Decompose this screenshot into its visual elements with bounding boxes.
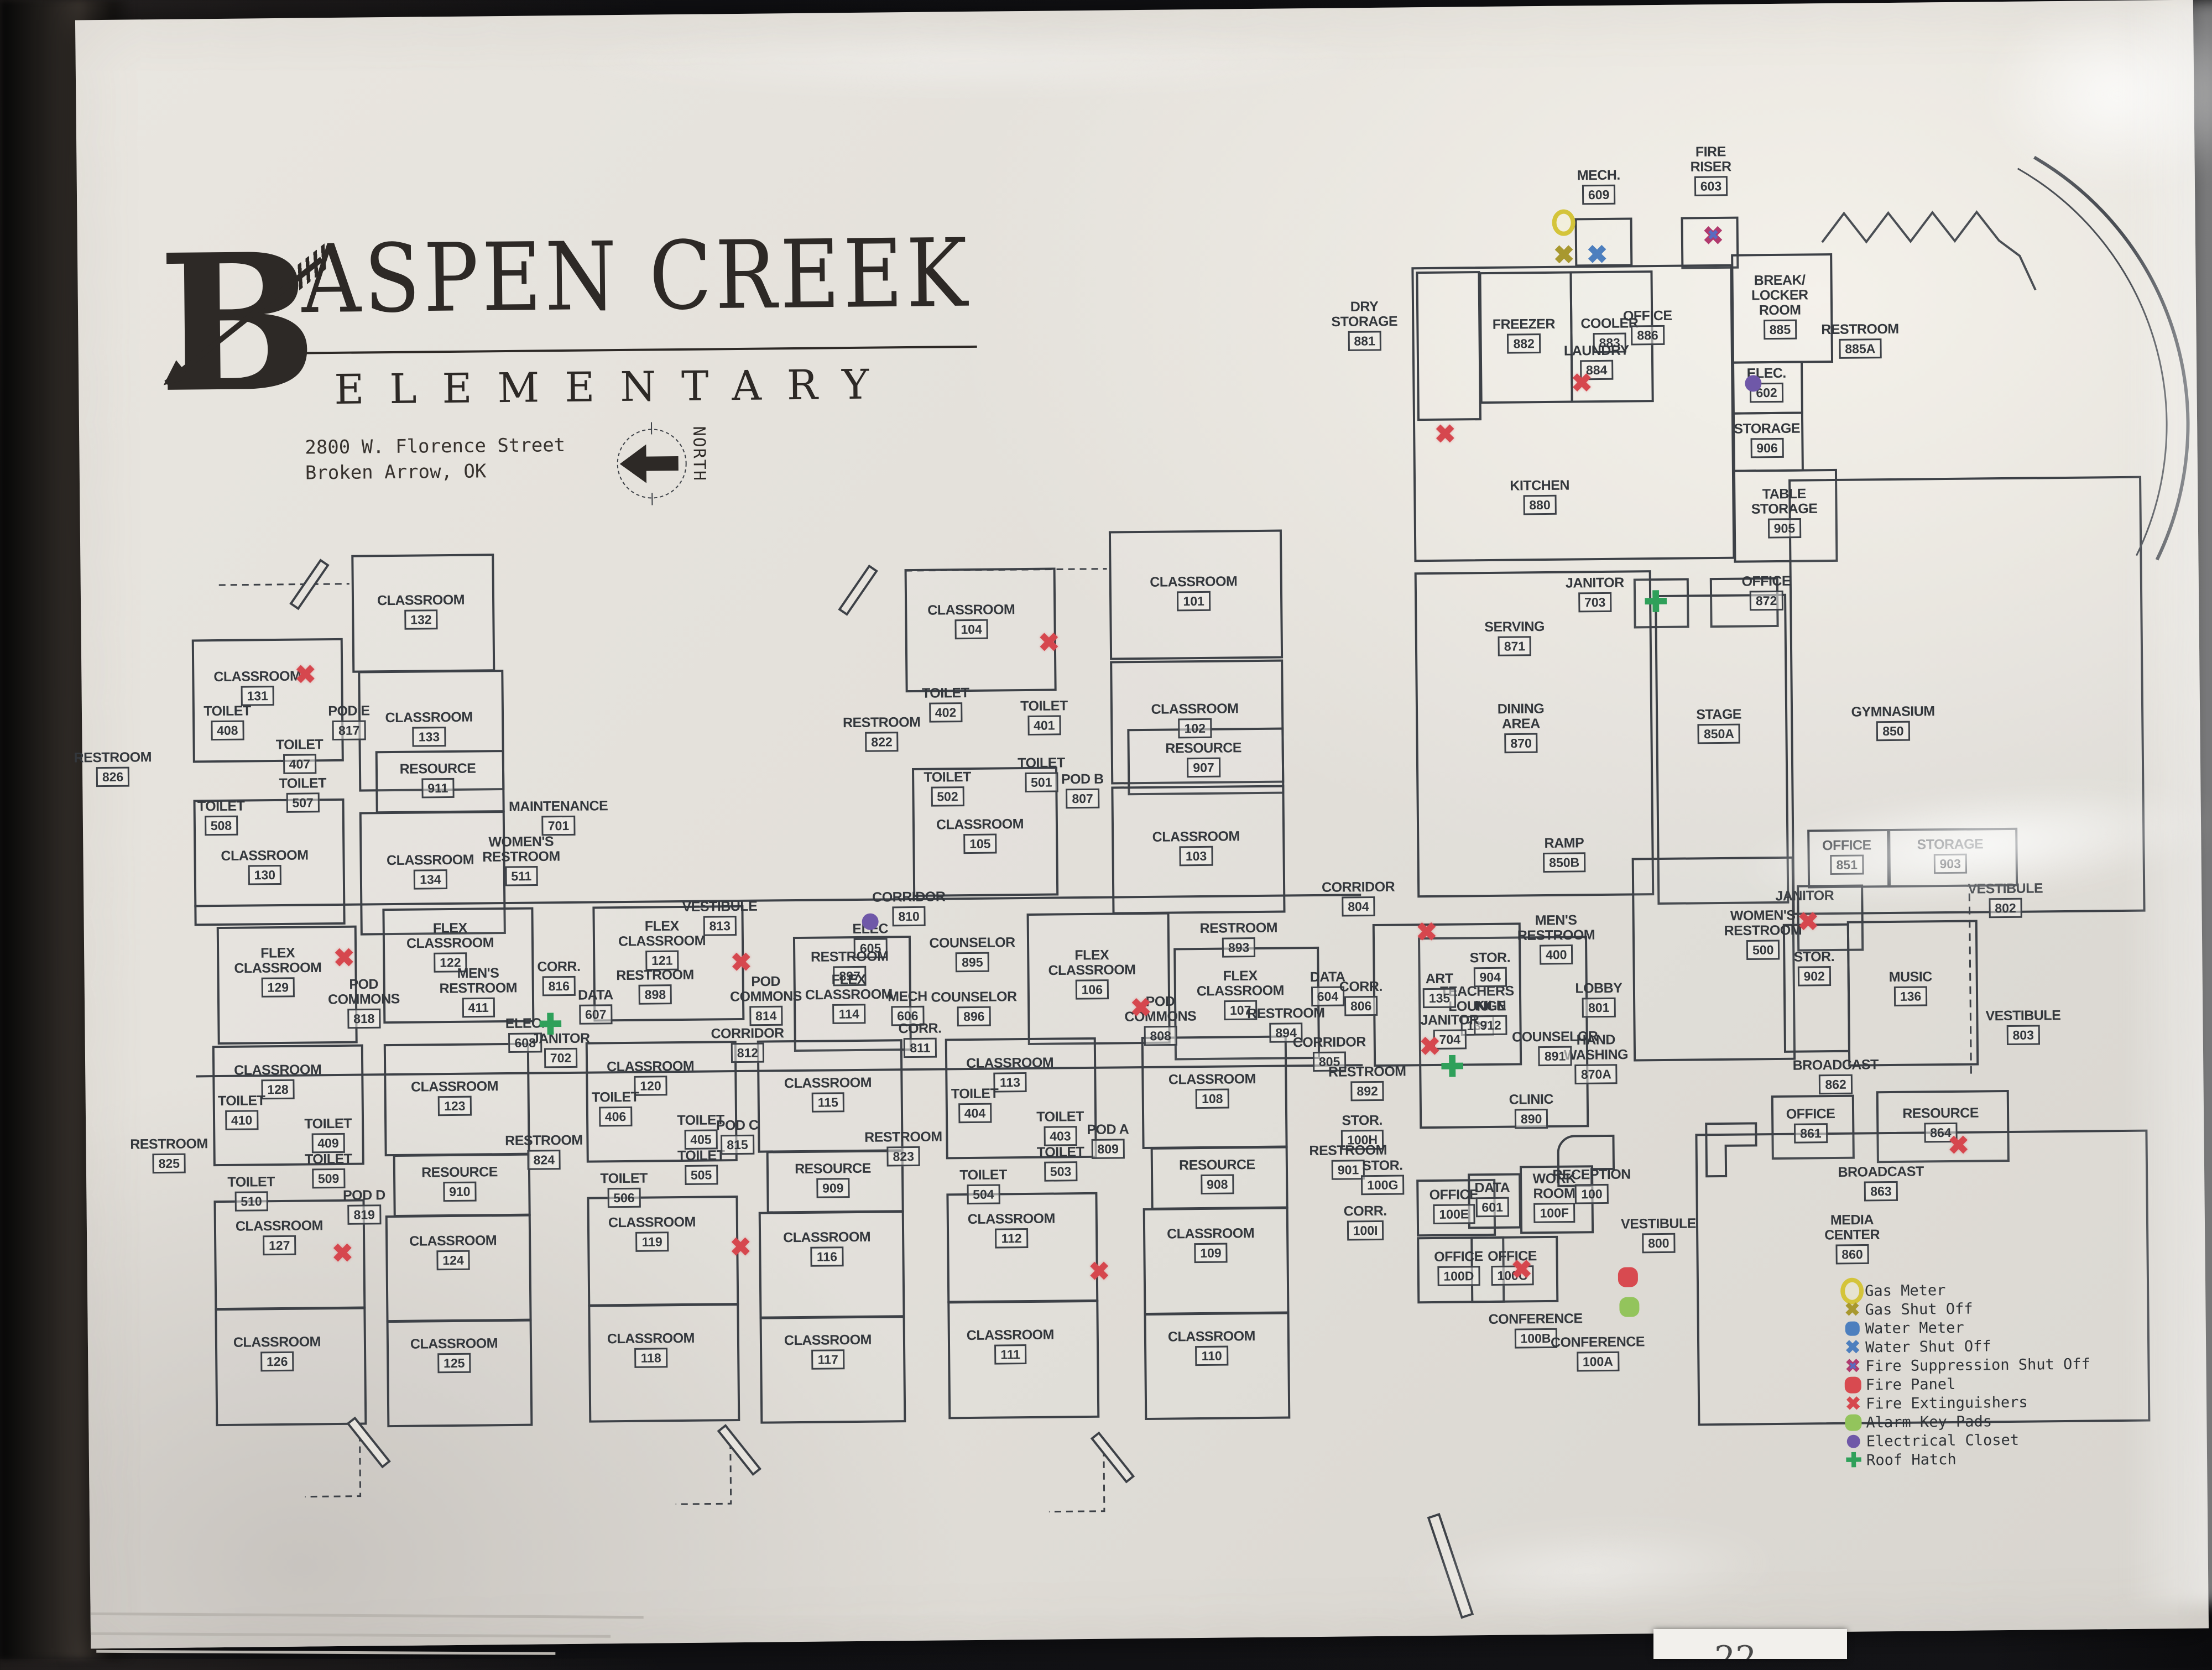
- room-number: 100G: [1361, 1175, 1405, 1195]
- legend-label: Fire Suppression Shut Off: [1865, 1355, 2090, 1375]
- room-label: CLASSROOM134: [387, 852, 474, 890]
- room-number: 885A: [1839, 338, 1881, 359]
- panel-icon: [1845, 1377, 1861, 1394]
- room-number: 819: [347, 1204, 381, 1225]
- room-name: STOR.: [1361, 1158, 1405, 1173]
- elec-marker: [1745, 375, 1761, 394]
- legend: Gas Meter✖Gas Shut OffWater Meter✖Water …: [1839, 1280, 2091, 1470]
- room-label: FREEZER882: [1493, 317, 1556, 354]
- legend-swatch: ✖✖: [1840, 1356, 1865, 1375]
- room-label: STORAGE903: [1917, 837, 1983, 874]
- water-x-icon: ✖: [1845, 1338, 1861, 1357]
- fire-ext-icon: ✖: [1038, 629, 1060, 655]
- elec-icon: [862, 914, 879, 930]
- room-number: 907: [1187, 758, 1220, 778]
- roof-marker: ✚: [1440, 1052, 1464, 1081]
- room-name: DINING AREA: [1498, 702, 1545, 732]
- room-number: 803: [2006, 1025, 2040, 1045]
- legend-swatch: [1840, 1414, 1866, 1431]
- room-number: 114: [833, 1004, 865, 1024]
- room-number: 103: [1180, 846, 1213, 866]
- bottom-paper-tab: 22: [1653, 1629, 1847, 1659]
- room-name: KITCHEN: [1510, 478, 1569, 494]
- room-label: RESTROOM823: [864, 1129, 942, 1166]
- room-number: 128: [261, 1079, 295, 1100]
- room-name: CORRIDOR: [711, 1026, 784, 1041]
- room-name: RESOURCE: [400, 761, 476, 776]
- room-label: RESTROOM898: [616, 968, 694, 1005]
- room-name: STORAGE: [1917, 837, 1983, 852]
- room-label: POD E817: [328, 703, 370, 740]
- room-number: 406: [599, 1107, 633, 1127]
- room-name: OFFICE: [1429, 1187, 1478, 1203]
- room-label: STAGE850A: [1696, 707, 1741, 744]
- room-number: 108: [1196, 1088, 1229, 1109]
- room-number: 127: [263, 1235, 296, 1256]
- legend-swatch: [1840, 1321, 1865, 1335]
- room-number: 863: [1864, 1181, 1898, 1202]
- room-label: RESTROOM822: [843, 715, 921, 752]
- room-name: TOILET: [592, 1090, 639, 1105]
- room-number: 886: [1631, 325, 1665, 346]
- room-label: TOILET504: [959, 1167, 1007, 1204]
- room-label: TOILET404: [951, 1087, 999, 1124]
- room-label: CLASSROOM103: [1152, 829, 1240, 867]
- room-label: DINING AREA870: [1498, 702, 1545, 754]
- room-label: RESOURCE907: [1165, 740, 1241, 777]
- room-number: 129: [261, 977, 295, 998]
- room-name: OFFICE: [1741, 574, 1791, 589]
- room-name: FLEX CLASSROOM: [234, 946, 322, 977]
- room-label: FLEX CLASSROOM121: [618, 919, 706, 971]
- room-number: 862: [1819, 1074, 1853, 1095]
- gas-x-marker: ✖: [1553, 242, 1575, 267]
- room-number: 903: [1933, 854, 1967, 874]
- room-label: CLASSROOM117: [784, 1333, 872, 1370]
- room-name: CLASSROOM: [1168, 1329, 1255, 1345]
- fire-ext-icon: ✖: [332, 1240, 353, 1266]
- room-number: 507: [286, 792, 320, 813]
- room-name: OFFICE: [1434, 1249, 1483, 1265]
- room-number: 901: [1332, 1160, 1365, 1180]
- fire-ext-marker: ✖: [295, 661, 316, 687]
- room-name: FLEX CLASSROOM: [618, 919, 706, 949]
- room-number: 870: [1504, 733, 1538, 754]
- room-number: 100A: [1577, 1351, 1619, 1372]
- room-label: LOBBY801: [1575, 981, 1623, 1018]
- room-label: POD B807: [1061, 772, 1104, 809]
- legend-item: Alarm Key Pads: [1840, 1411, 2091, 1432]
- room-name: CLASSROOM: [1150, 574, 1237, 590]
- room-label: POD C815: [716, 1118, 759, 1155]
- room-number: 826: [96, 767, 130, 787]
- room-name: RESOURCE: [1902, 1106, 1979, 1121]
- room-label: TOILET403: [1036, 1109, 1084, 1146]
- room-name: CLASSROOM: [387, 852, 474, 868]
- room-name: POD A: [1087, 1122, 1129, 1137]
- room-number: 601: [1475, 1197, 1509, 1218]
- room-name: FLEX CLASSROOM: [1048, 948, 1136, 979]
- room-name: MECH.: [1577, 168, 1620, 184]
- room-name: GYMNASIUM: [1851, 704, 1934, 719]
- alarm-icon: [1845, 1415, 1861, 1431]
- room-name: TOILET: [1036, 1109, 1084, 1125]
- room-number: 816: [542, 976, 576, 996]
- legend-swatch: ✖: [1839, 1300, 1865, 1319]
- room-label: KITCHEN880: [1510, 478, 1569, 515]
- room-label: CLASSROOM109: [1167, 1226, 1255, 1264]
- room-label: RESTROOM825: [130, 1136, 208, 1173]
- room-number: 902: [1797, 966, 1831, 987]
- room-label: CONFERENCE100A: [1551, 1334, 1645, 1372]
- room-name: CLASSROOM: [927, 602, 1015, 618]
- room-label: TOILET409: [304, 1116, 352, 1154]
- room-number: 112: [995, 1228, 1027, 1249]
- room-label: OFFICE872: [1741, 574, 1791, 611]
- room-name: CLASSROOM: [233, 1334, 321, 1350]
- fire-ext-icon: ✖: [1948, 1133, 1969, 1158]
- room-name: STAGE: [1696, 707, 1741, 723]
- room-name: CLASSROOM: [385, 710, 472, 726]
- room-number: 892: [1350, 1081, 1384, 1102]
- room-number: 118: [634, 1348, 667, 1368]
- fire-ext-icon: ✖: [1088, 1259, 1110, 1284]
- room-number: 872: [1750, 591, 1783, 611]
- room-label: RAMP850B: [1543, 836, 1586, 873]
- room-label: CLASSROOM101: [1150, 574, 1238, 612]
- room-label: COUNSELOR896: [931, 989, 1017, 1026]
- fire-ext-icon: ✖: [1571, 370, 1593, 395]
- room-number: 801: [1582, 998, 1616, 1018]
- elec-icon: [1745, 375, 1761, 392]
- room-label: OFFICE886: [1623, 309, 1672, 346]
- room-number: 119: [635, 1231, 668, 1252]
- room-name: DATA: [578, 988, 613, 1003]
- room-label: RESTROOM893: [1199, 921, 1277, 958]
- room-label: CLASSROOM110: [1168, 1329, 1256, 1366]
- room-number: 850: [1876, 721, 1910, 742]
- room-label: OFFICE100D: [1434, 1249, 1483, 1286]
- room-label: TOILET508: [197, 799, 245, 836]
- fire-ext-icon: ✖: [333, 945, 355, 970]
- room-name: VESTIBULE: [1985, 1008, 2060, 1024]
- room-name: RESTROOM: [130, 1136, 208, 1152]
- room-number: 130: [248, 865, 281, 885]
- legend-swatch: [1840, 1376, 1866, 1393]
- room-name: MAINTENANCE: [509, 799, 608, 815]
- room-number: 860: [1835, 1244, 1869, 1265]
- fire-ext-marker: ✖: [1511, 1256, 1532, 1282]
- room-label: CLASSROOM125: [410, 1336, 498, 1374]
- room-number: 511: [505, 866, 538, 886]
- room-name: DRY STORAGE: [1331, 299, 1397, 330]
- room-number: 703: [1578, 592, 1612, 613]
- room-number: 800: [1642, 1233, 1676, 1254]
- room-label: CLASSROOM124: [409, 1233, 497, 1271]
- fire-ext-icon: ✖: [295, 661, 316, 687]
- room-name: DATA: [1474, 1181, 1510, 1196]
- room-name: OFFICE: [1786, 1107, 1835, 1122]
- room-label: DATA607: [578, 988, 613, 1025]
- room-name: CORRIDOR: [1322, 880, 1395, 895]
- room-label: JANITOR703: [1566, 576, 1624, 613]
- room-number: 101: [1177, 591, 1211, 611]
- floorplan-sheet: B ASPEN CREEK ELEMENTARY 2800 W. Florenc…: [75, 0, 2209, 1648]
- room-name: FLEX CLASSROOM: [805, 972, 893, 1003]
- fire-ext-marker: ✖: [731, 949, 752, 975]
- roof-icon: ✚: [1644, 588, 1668, 617]
- room-name: STORAGE: [1734, 421, 1800, 437]
- room-number: 824: [527, 1150, 561, 1170]
- room-label: RESOURCE908: [1179, 1157, 1255, 1194]
- room-number: 850B: [1543, 852, 1585, 873]
- room-name: FLEX CLASSROOM: [406, 921, 494, 952]
- legend-item: ✖Gas Shut Off: [1839, 1298, 2090, 1319]
- room-name: CLASSROOM: [236, 1218, 323, 1234]
- room-number: 609: [1582, 185, 1616, 205]
- room-label: ART135: [1422, 972, 1456, 1009]
- gas-meter-marker: [1552, 209, 1575, 238]
- room-label: TOILET407: [276, 737, 324, 774]
- legend-item: ✖Water Shut Off: [1840, 1336, 2090, 1357]
- gas-x-icon: ✖: [1844, 1301, 1860, 1319]
- room-name: CLASSROOM: [411, 1079, 498, 1095]
- fire-ext-marker: ✖: [730, 1234, 752, 1260]
- handwritten-number: 22: [1714, 1639, 1756, 1659]
- elec-icon: [1847, 1435, 1860, 1448]
- legend-item: Fire Panel: [1840, 1374, 2091, 1395]
- room-label: FLEX CLASSROOM129: [234, 946, 322, 998]
- room-label: STORAGE906: [1734, 421, 1800, 458]
- room-number: 502: [931, 786, 964, 807]
- room-name: STOR.: [1469, 951, 1510, 966]
- room-number: 117: [812, 1349, 844, 1370]
- room-number: 701: [542, 816, 576, 836]
- fire-ext-icon: ✖: [1416, 919, 1437, 944]
- legend-item: ✚Roof Hatch: [1841, 1449, 2091, 1470]
- room-label: CORRIDOR804: [1322, 880, 1395, 917]
- room-number: 123: [438, 1095, 472, 1116]
- room-name: TABLE STORAGE: [1751, 487, 1817, 517]
- fire-ext-marker: ✖: [1571, 370, 1593, 395]
- room-name: RESTROOM: [811, 949, 889, 964]
- room-number: 812: [731, 1043, 765, 1063]
- room-label: POD COMMONS818: [328, 977, 400, 1029]
- room-name: CLASSROOM: [213, 669, 301, 685]
- fire-ext-marker: ✖: [1038, 629, 1060, 655]
- room-number: 125: [437, 1353, 471, 1374]
- room-number: 408: [211, 721, 244, 741]
- room-name: CLASSROOM: [607, 1059, 694, 1075]
- room-name: RECEPTION: [1552, 1167, 1631, 1183]
- room-name: KILN: [1474, 999, 1507, 1014]
- room-label: CLASSROOM111: [967, 1328, 1055, 1365]
- room-label: OFFICE861: [1786, 1107, 1835, 1144]
- room-label: TOILET410: [218, 1093, 265, 1130]
- room-name: CLASSROOM: [1152, 829, 1240, 845]
- room-name: VESTIBULE: [1621, 1216, 1696, 1231]
- room-name: COUNSELOR: [929, 935, 1015, 951]
- room-label: CLINIC890: [1509, 1092, 1554, 1129]
- room-label: RESOURCE909: [795, 1161, 871, 1198]
- room-label: VESTIBULE803: [1985, 1008, 2060, 1045]
- room-label: FLEX CLASSROOM106: [1048, 948, 1136, 1000]
- room-label: DRY STORAGE881: [1331, 299, 1398, 351]
- photo-of-floorplan: { "title":{ "name":"ASPEN CREEK", "subti…: [0, 0, 2212, 1659]
- room-name: TOILET: [305, 1152, 352, 1167]
- room-name: CLASSROOM: [607, 1331, 695, 1347]
- room-name: RESTROOM: [505, 1133, 583, 1149]
- room-label: VESTIBULE800: [1621, 1216, 1696, 1253]
- fire-ext-marker: ✖: [333, 945, 355, 970]
- room-number: 410: [225, 1110, 259, 1130]
- room-name: CLASSROOM: [784, 1333, 872, 1349]
- panel-marker: [1618, 1267, 1638, 1289]
- room-name: CLASSROOM: [377, 592, 465, 608]
- alarm-marker: [1619, 1297, 1639, 1319]
- room-number: 904: [1473, 967, 1507, 988]
- room-number: 115: [812, 1092, 844, 1113]
- fire-supp-icon: ✖✖: [1845, 1357, 1861, 1376]
- room-name: OFFICE: [1623, 309, 1672, 324]
- room-label: MEN'S RESTROOM411: [439, 966, 517, 1017]
- room-label: CORRIDOR812: [711, 1026, 784, 1063]
- gas-meter-icon: [1552, 209, 1575, 236]
- room-name: MECH: [888, 989, 927, 1005]
- room-number: 891: [1538, 1046, 1572, 1067]
- room-name: RAMP: [1543, 836, 1585, 851]
- room-label: CLASSROOM130: [221, 848, 309, 885]
- room-label: RESTROOM824: [505, 1133, 583, 1170]
- room-name: COUNSELOR: [931, 989, 1016, 1005]
- room-name: RESTROOM: [1821, 322, 1899, 337]
- room-name: TOILET: [218, 1093, 265, 1109]
- room-name: CORRIDOR: [1293, 1035, 1366, 1050]
- room-number: 402: [929, 702, 963, 723]
- room-name: RESTROOM: [1247, 1006, 1325, 1021]
- room-label: CLASSROOM132: [377, 592, 465, 630]
- room-label: CLASSROOM102: [1151, 701, 1239, 739]
- room-number: 870A: [1575, 1064, 1618, 1084]
- legend-label: Gas Shut Off: [1865, 1300, 1973, 1318]
- room-number: 909: [816, 1178, 850, 1198]
- room-number: 409: [311, 1133, 345, 1154]
- room-label: MEDIA CENTER860: [1824, 1213, 1880, 1265]
- room-number: 100E: [1433, 1204, 1475, 1224]
- fire-ext-marker: ✖: [332, 1240, 353, 1266]
- fire-ext-marker: ✖: [1948, 1133, 1969, 1158]
- room-label: TABLE STORAGE905: [1751, 487, 1818, 539]
- room-number: 405: [684, 1129, 718, 1150]
- room-label: CLASSROOM104: [927, 602, 1015, 640]
- room-number: 893: [1222, 937, 1256, 958]
- fire-ext-marker: ✖: [1434, 421, 1456, 447]
- room-name: VESTIBULE: [1968, 881, 2043, 896]
- room-name: TOILET: [922, 686, 969, 701]
- room-label: VESTIBULE802: [1968, 881, 2043, 918]
- room-label: CLASSROOM105: [936, 817, 1024, 854]
- room-label: OFFICE100E: [1429, 1187, 1478, 1224]
- room-label: CLASSROOM127: [236, 1218, 324, 1256]
- room-label: CLASSROOM131: [213, 669, 301, 707]
- room-number: 407: [283, 754, 317, 774]
- room-label: JANITOR: [1775, 888, 1834, 904]
- room-label: WOMEN'S RESTROOM511: [482, 834, 560, 886]
- room-name: JANITOR: [1775, 888, 1834, 904]
- room-number: 851: [1830, 854, 1864, 875]
- roof-marker: ✚: [538, 1010, 562, 1039]
- fire-ext-icon: ✖: [1797, 909, 1819, 934]
- room-label: MUSIC136: [1889, 969, 1933, 1006]
- alarm-icon: [1619, 1297, 1639, 1317]
- room-number: 808: [1144, 1026, 1177, 1046]
- roof-marker: ✚: [1644, 588, 1668, 617]
- room-name: CLASSROOM: [608, 1215, 696, 1231]
- room-label: TOILET509: [305, 1152, 352, 1189]
- room-name: TOILET: [276, 737, 324, 753]
- room-number: 905: [1768, 518, 1802, 539]
- room-name: WOMEN'S RESTROOM: [1724, 908, 1802, 938]
- room-number: 100: [1575, 1184, 1609, 1204]
- water-overlay-icon: ✖: [1849, 1361, 1856, 1371]
- room-number: 124: [436, 1250, 470, 1271]
- room-label: DATA601: [1474, 1181, 1510, 1218]
- room-label: CLASSROOM108: [1168, 1072, 1256, 1109]
- room-number: 113: [994, 1072, 1026, 1093]
- room-name: CLASSROOM: [967, 1328, 1054, 1344]
- room-number: 401: [1027, 715, 1061, 735]
- room-number: 134: [414, 869, 447, 890]
- fire-ext-marker: ✖: [1130, 995, 1152, 1020]
- fire-ext-icon: ✖: [730, 1234, 752, 1260]
- room-number: 825: [152, 1154, 186, 1174]
- fire-ext-icon: ✖: [731, 949, 752, 975]
- room-number: 135: [1423, 988, 1457, 1009]
- room-name: TOILET: [279, 776, 326, 791]
- room-name: TOILET: [600, 1171, 648, 1187]
- room-number: 814: [749, 1006, 783, 1026]
- room-number: 109: [1194, 1243, 1228, 1264]
- room-name: LAUNDRY: [1564, 343, 1629, 359]
- room-number: 110: [1196, 1346, 1228, 1366]
- room-label: TOILET507: [279, 776, 326, 813]
- room-name: RESTROOM: [1309, 1143, 1387, 1158]
- fire-supp-icon: ✖✖: [1702, 223, 1724, 248]
- room-label: CORR.806: [1339, 979, 1383, 1016]
- room-name: COUNSELOR: [1512, 1029, 1598, 1045]
- fire-ext-icon: ✖: [1845, 1395, 1861, 1413]
- room-number: 908: [1201, 1174, 1234, 1194]
- room-name: LOBBY: [1575, 981, 1622, 996]
- room-label: STOR.904: [1469, 951, 1510, 988]
- room-name: TOILET: [951, 1087, 999, 1102]
- room-label: MEN'S RESTROOM400: [1517, 913, 1595, 965]
- legend-item: Gas Meter: [1839, 1280, 2090, 1301]
- room-label: TOILET401: [1020, 698, 1068, 735]
- room-number: 811: [904, 1038, 936, 1058]
- room-label: TOILET510: [227, 1175, 275, 1212]
- room-number: 807: [1066, 789, 1099, 809]
- room-number: 132: [404, 609, 438, 630]
- room-number: 885: [1764, 320, 1797, 340]
- room-label: FLEX CLASSROOM114: [805, 972, 893, 1025]
- room-label: RESTROOM892: [1328, 1064, 1406, 1101]
- room-number: 505: [685, 1165, 718, 1185]
- room-label: CLASSROOM133: [385, 710, 473, 748]
- room-name: TOILET: [959, 1167, 1007, 1183]
- room-number: 100D: [1437, 1266, 1480, 1286]
- room-name: VESTIBULE: [682, 899, 757, 915]
